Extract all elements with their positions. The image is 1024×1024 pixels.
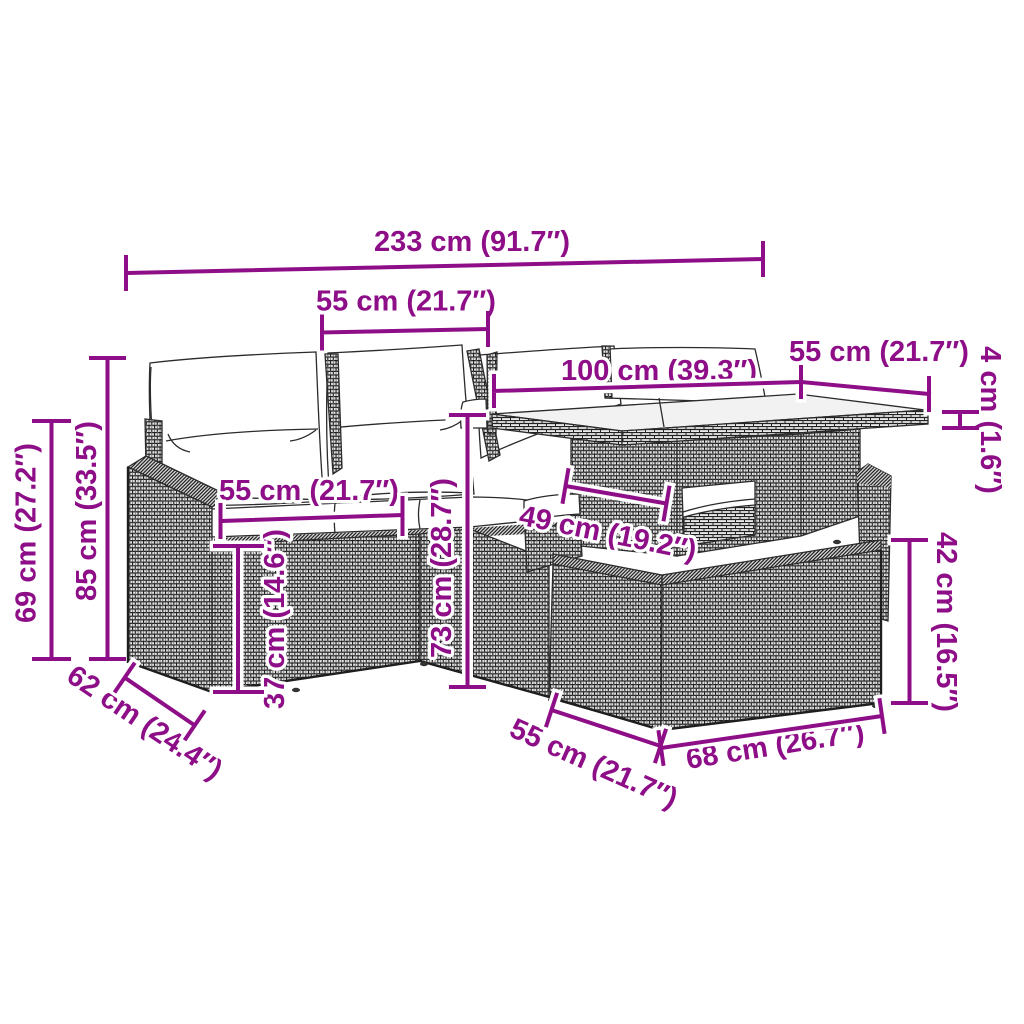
svg-text:37 cm (14.6″): 37 cm (14.6″) bbox=[259, 529, 291, 709]
svg-text:4 cm (1.6″): 4 cm (1.6″) bbox=[974, 346, 1006, 494]
svg-text:69 cm (27.2″): 69 cm (27.2″) bbox=[11, 443, 43, 623]
svg-text:55 cm (21.7″): 55 cm (21.7″) bbox=[316, 286, 496, 318]
svg-text:55 cm (21.7″): 55 cm (21.7″) bbox=[789, 336, 969, 368]
svg-text:42 cm (16.5″): 42 cm (16.5″) bbox=[930, 532, 962, 712]
svg-text:73 cm (28.7″): 73 cm (28.7″) bbox=[426, 478, 458, 658]
svg-text:85 cm (33.5″): 85 cm (33.5″) bbox=[71, 421, 103, 601]
svg-text:233 cm (91.7″): 233 cm (91.7″) bbox=[374, 226, 570, 258]
svg-text:55 cm (21.7″): 55 cm (21.7″) bbox=[219, 475, 399, 507]
